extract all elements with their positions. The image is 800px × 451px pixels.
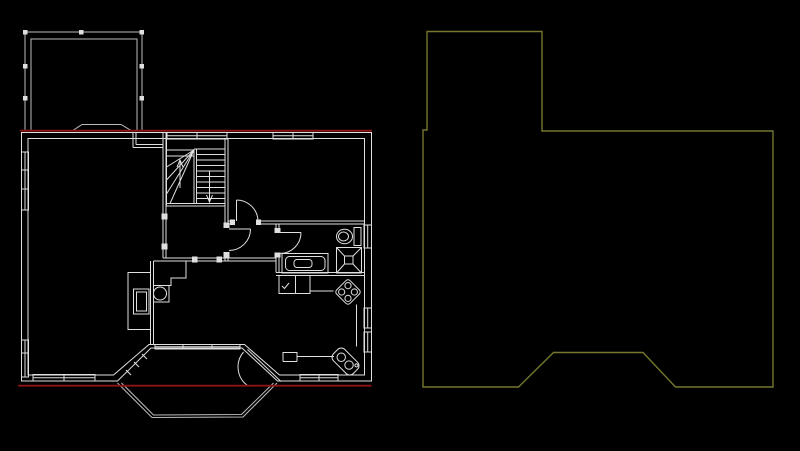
stair-treads-right <box>197 149 226 199</box>
window-right-c <box>364 332 372 352</box>
shower <box>337 248 362 274</box>
hall-east-wall <box>225 139 228 261</box>
fireplace <box>128 273 151 330</box>
stair-down-arrow <box>207 171 213 202</box>
window-left-b <box>22 340 29 377</box>
toilet <box>337 228 362 246</box>
bathroom <box>282 228 362 274</box>
kitchen-pantry-step <box>154 261 187 302</box>
window-bay-diagonal <box>126 354 147 375</box>
counter-south <box>283 353 334 362</box>
window-right-a <box>364 225 372 248</box>
closet-wall <box>133 133 163 148</box>
bedroom-south-wall <box>228 221 365 224</box>
kitchen <box>279 276 361 378</box>
corner-sink <box>330 346 361 377</box>
kitchen-counter-north <box>279 276 310 294</box>
cad-drawing-layer <box>0 0 800 451</box>
stove <box>335 279 362 306</box>
outline-polygon <box>423 32 773 388</box>
level-outline <box>423 32 773 388</box>
bathtub <box>282 254 328 274</box>
staircase <box>167 139 226 206</box>
deck <box>23 30 144 131</box>
stair-up-arrow <box>177 160 183 188</box>
window-right-b <box>364 308 372 328</box>
floor-plan <box>18 30 372 418</box>
stair-west-wall <box>163 133 166 258</box>
porch-door <box>238 350 281 386</box>
bay-porch <box>118 383 278 418</box>
deck-posts <box>23 30 144 101</box>
interior-walls <box>133 133 365 345</box>
dishwasher-check-icon <box>282 283 289 289</box>
hall-door <box>224 223 251 258</box>
cad-canvas[interactable] <box>0 0 800 451</box>
window-left-a <box>22 152 29 210</box>
doors <box>224 200 302 386</box>
bedroom-door <box>230 200 261 225</box>
